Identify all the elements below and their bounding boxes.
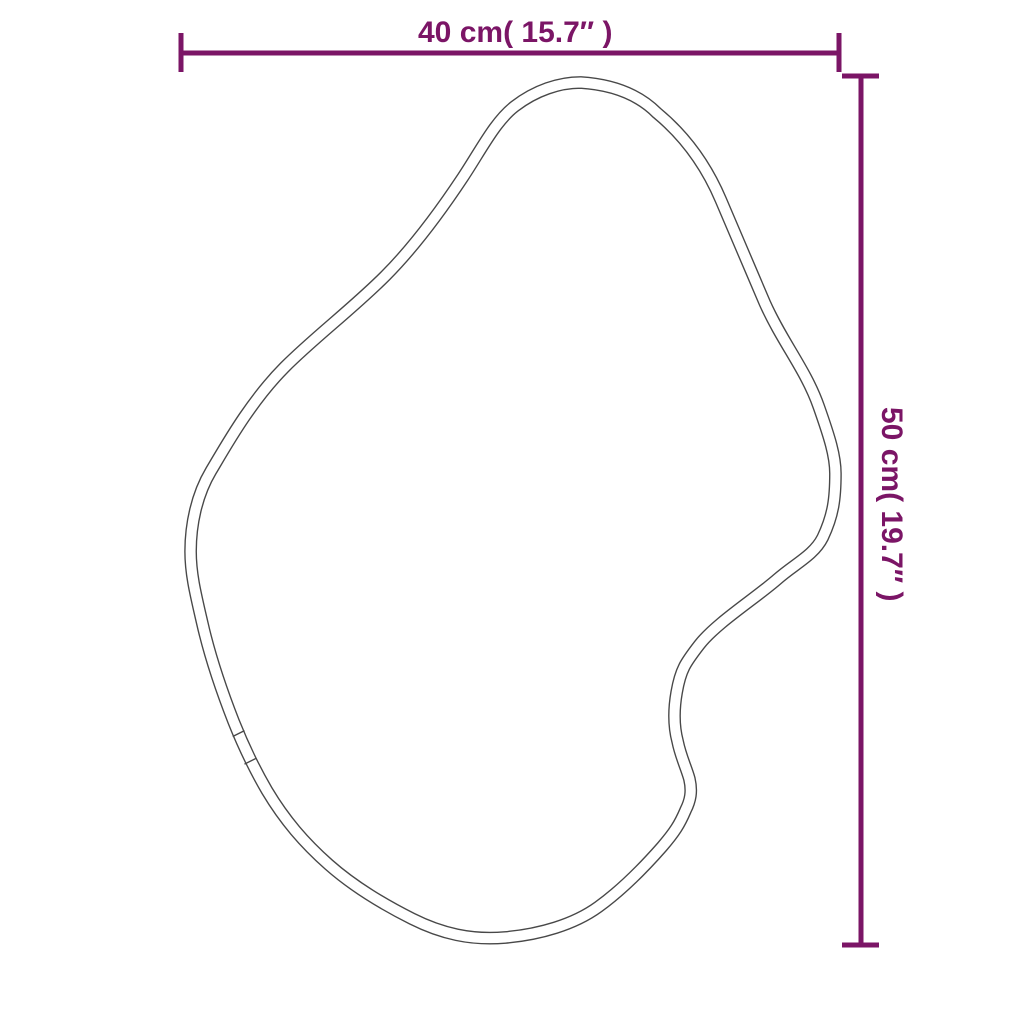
width-dimension: 40 cm( 15.7″ )	[181, 16, 839, 72]
width-dimension-label: 40 cm( 15.7″ )	[418, 16, 612, 49]
mirror-shape	[191, 83, 836, 939]
dimension-diagram: 40 cm( 15.7″ ) 50 cm( 19.7″ )	[0, 0, 1024, 1024]
height-dimension: 50 cm( 19.7″ )	[842, 76, 908, 945]
diagram-canvas: 40 cm( 15.7″ ) 50 cm( 19.7″ )	[0, 0, 1024, 1024]
mirror-frame-outline	[191, 83, 836, 939]
height-dimension-label: 50 cm( 19.7″ )	[875, 407, 908, 601]
